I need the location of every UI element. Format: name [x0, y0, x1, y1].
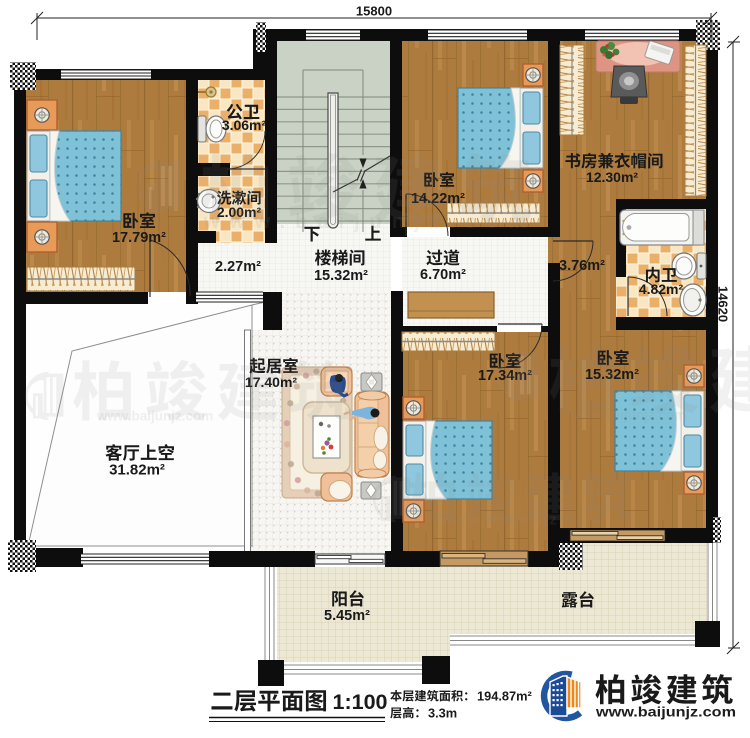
svg-text:31.82m²: 31.82m²	[109, 462, 165, 479]
svg-text:1:100: 1:100	[333, 690, 388, 714]
svg-text:3.3m: 3.3m	[428, 706, 457, 721]
svg-text:14620: 14620	[716, 286, 731, 322]
svg-text:12.30m²: 12.30m²	[586, 169, 638, 185]
svg-text:3.76m²: 3.76m²	[559, 258, 605, 274]
svg-text:194.87m²: 194.87m²	[477, 689, 532, 704]
svg-text:3.06m²: 3.06m²	[222, 117, 267, 133]
svg-text:15800: 15800	[356, 4, 392, 19]
svg-text:4.82m²: 4.82m²	[639, 281, 684, 297]
svg-text:6.70m²: 6.70m²	[420, 267, 466, 283]
svg-text:www.baijunjz.com: www.baijunjz.com	[439, 512, 601, 529]
svg-text:www.baijunjz.com: www.baijunjz.com	[595, 705, 736, 720]
svg-text:www.baijunjz.com: www.baijunjz.com	[203, 211, 537, 233]
svg-text:www.baijunjz.com: www.baijunjz.com	[96, 409, 214, 424]
svg-text:www.baijunjz.com: www.baijunjz.com	[569, 408, 687, 423]
svg-text:2.27m²: 2.27m²	[215, 259, 261, 275]
svg-text:17.79m²: 17.79m²	[112, 230, 166, 246]
svg-text:15.32m²: 15.32m²	[314, 268, 368, 284]
svg-text:5.45m²: 5.45m²	[324, 608, 370, 624]
